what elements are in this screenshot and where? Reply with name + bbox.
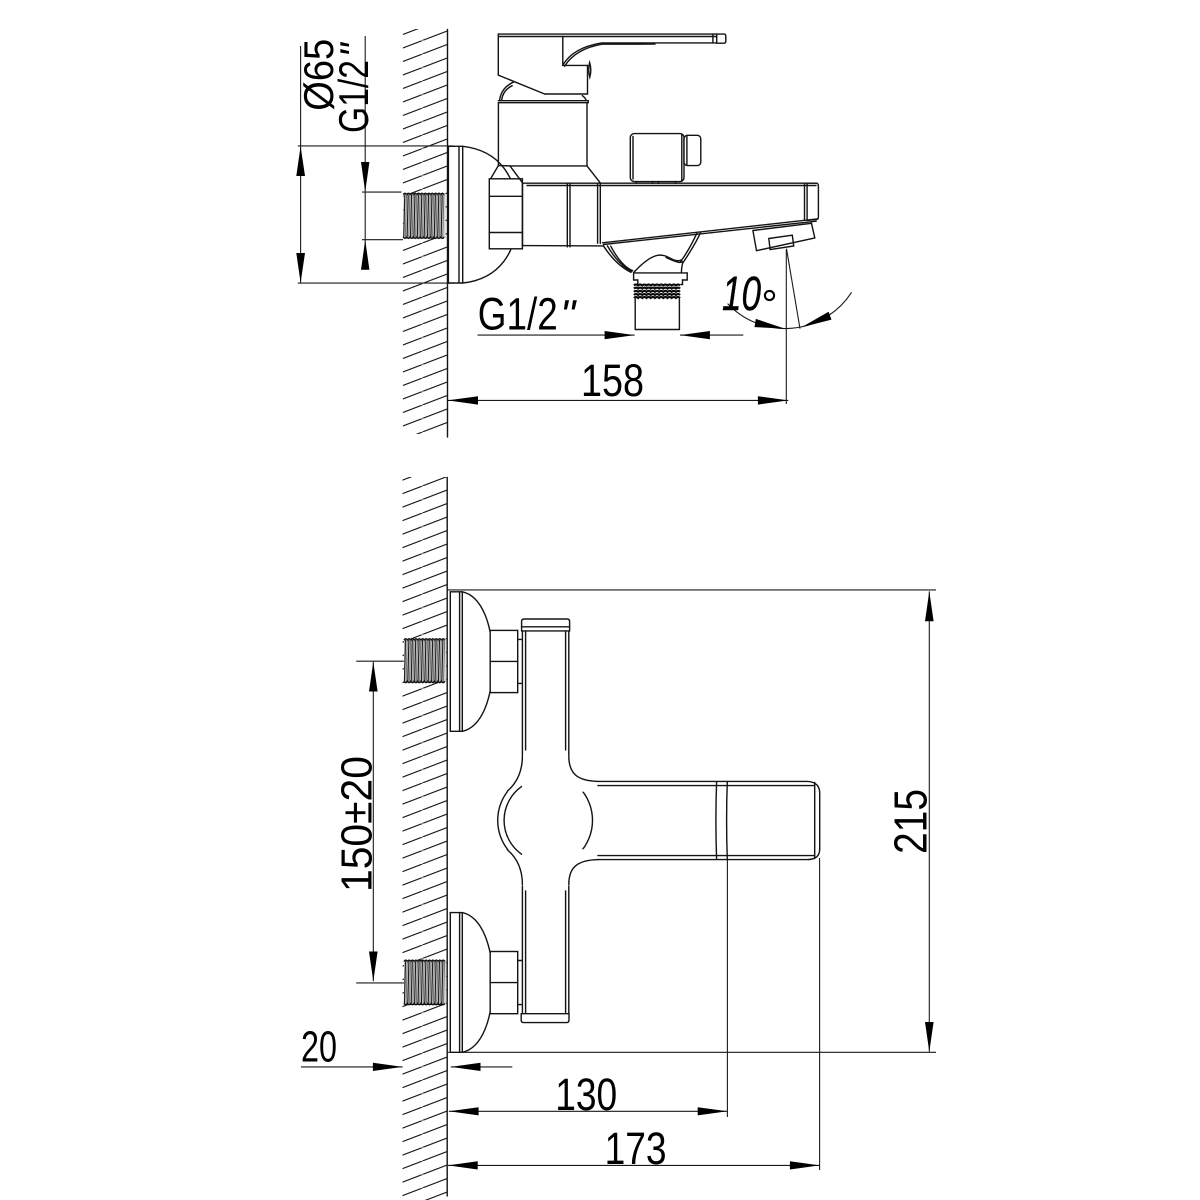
svg-text:150±20: 150±20 — [333, 756, 382, 892]
svg-text:215: 215 — [885, 789, 937, 854]
svg-text:": " — [560, 292, 577, 340]
svg-text:10: 10 — [722, 268, 761, 321]
svg-text:G1/2: G1/2 — [330, 60, 377, 133]
svg-text:": " — [333, 42, 377, 58]
svg-text:20: 20 — [301, 1023, 337, 1072]
svg-text:G1/2: G1/2 — [478, 289, 558, 340]
svg-text:173: 173 — [605, 1123, 667, 1174]
svg-text:130: 130 — [555, 1069, 617, 1120]
svg-text:158: 158 — [581, 355, 644, 406]
